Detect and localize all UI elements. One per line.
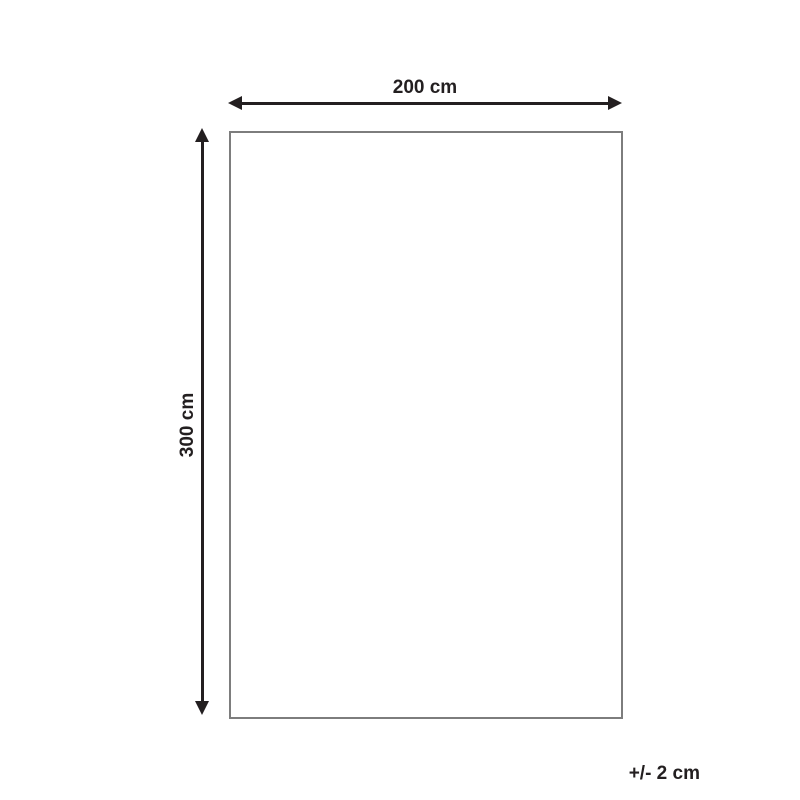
product-outline-rectangle (229, 131, 623, 719)
dimension-diagram: 200 cm 300 cm +/- 2 cm (0, 0, 800, 800)
height-arrow-shaft (201, 138, 204, 705)
arrow-down-icon (195, 701, 209, 715)
width-arrow-shaft (238, 102, 612, 105)
height-dimension-label: 300 cm (177, 393, 199, 457)
width-dimension-label: 200 cm (228, 77, 622, 99)
tolerance-label: +/- 2 cm (560, 763, 700, 785)
